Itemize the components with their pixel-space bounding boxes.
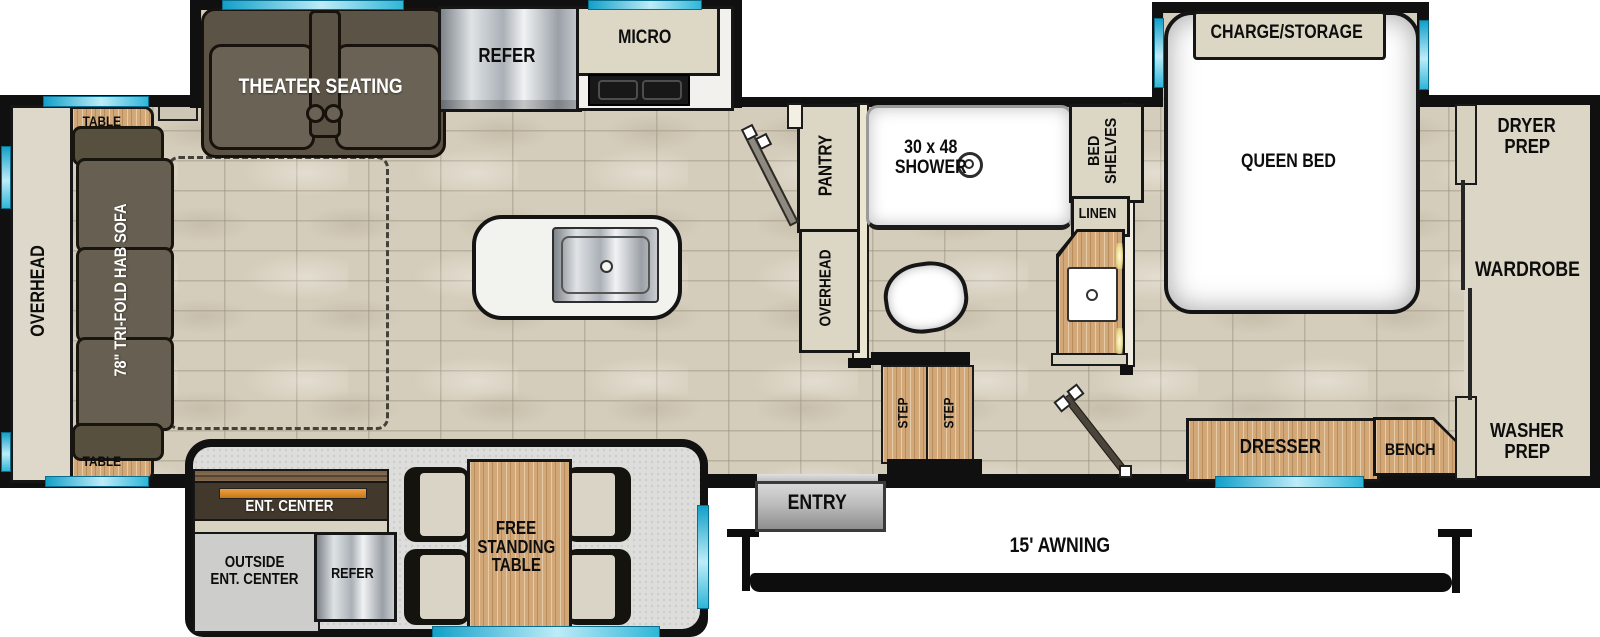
step-threshold xyxy=(887,459,982,474)
vanity-plinth xyxy=(1051,353,1128,366)
outside-ent-center-label: OUTSIDE ENT. CENTER xyxy=(193,548,316,596)
dryer-prep-label: DRYER PREP xyxy=(1464,113,1590,161)
side-table-bottom-label: TABLE xyxy=(70,446,134,476)
window xyxy=(697,505,709,609)
wall-end-cap xyxy=(1120,365,1133,375)
step-label: STEP xyxy=(881,365,924,460)
charge-storage-label: CHARGE/STORAGE xyxy=(1193,11,1380,54)
window xyxy=(432,626,660,637)
dresser-label: DRESSER xyxy=(1186,418,1374,476)
queen-bed-label: QUEEN BED xyxy=(1164,150,1412,174)
awning-bracket xyxy=(742,529,750,591)
wardrobe-label: WARDROBE xyxy=(1464,257,1590,283)
accent-light xyxy=(1116,243,1123,269)
sofa-label: 78" TRI-FOLD HAB SOFA xyxy=(58,155,183,425)
free-standing-table-label: FREE STANDING TABLE xyxy=(467,505,566,589)
theater-seating-label: THEATER SEATING xyxy=(201,74,440,100)
bed-shelves-label: BED SHELVES xyxy=(1069,104,1138,197)
window xyxy=(1154,18,1164,88)
ent-center-label: ENT. CENTER xyxy=(193,496,385,518)
cooktop-grate xyxy=(598,80,638,100)
cooktop xyxy=(588,74,690,106)
dining-chair xyxy=(565,467,631,542)
window xyxy=(1419,20,1429,90)
window xyxy=(222,0,404,10)
refrigerator-label: REFER xyxy=(438,6,576,106)
window xyxy=(1,146,11,209)
step-label: STEP xyxy=(926,365,970,460)
chair-cushion xyxy=(570,555,615,619)
awning-bar xyxy=(750,573,1452,592)
slide-travel-dashed-outline xyxy=(167,156,389,430)
door-latch xyxy=(1119,465,1132,478)
island-sink xyxy=(552,227,659,303)
side-table-top-label: TABLE xyxy=(70,106,134,136)
shower-label: 30 x 48 SHOWER xyxy=(872,134,990,182)
cupholder xyxy=(324,104,343,123)
wall-segment xyxy=(190,0,201,108)
window xyxy=(43,96,149,107)
window xyxy=(1215,476,1364,488)
chair-cushion xyxy=(570,473,615,536)
awning-bracket xyxy=(1452,529,1460,593)
window xyxy=(45,476,149,487)
washer-prep-label: WASHER PREP xyxy=(1464,418,1590,466)
dining-chair xyxy=(404,549,470,625)
outside-refrigerator-label: REFER xyxy=(314,532,391,616)
wall-end-cap xyxy=(848,358,871,368)
chair-cushion xyxy=(420,555,465,619)
entry-label: ENTRY xyxy=(755,481,880,526)
linen-label: LINEN xyxy=(1071,196,1124,231)
bench-label: BENCH xyxy=(1373,430,1448,470)
window xyxy=(1,432,11,472)
chair-cushion xyxy=(420,473,465,536)
vanity-sink xyxy=(1067,267,1118,322)
dining-chair xyxy=(404,467,470,542)
window xyxy=(588,0,702,10)
vanity-faucet xyxy=(1086,289,1098,301)
closet-door-track xyxy=(1468,288,1472,400)
floorplan-canvas: OVERHEAD TABLE TABLE 78" TRI-FOLD HAB SO… xyxy=(0,0,1600,637)
awning-label: 15' AWNING xyxy=(980,534,1140,558)
dining-chair xyxy=(565,549,631,625)
wall-segment xyxy=(1590,95,1600,488)
sink-faucet xyxy=(600,260,613,273)
pantry-label: PANTRY xyxy=(797,104,854,227)
cooktop-grate xyxy=(642,80,682,100)
microwave-label: MICRO xyxy=(576,6,714,70)
cupholder xyxy=(306,104,325,123)
step-threshold xyxy=(871,352,970,365)
bath-overhead-label: OVERHEAD xyxy=(799,229,854,347)
accent-light xyxy=(1116,328,1123,354)
wall-segment xyxy=(703,474,758,488)
